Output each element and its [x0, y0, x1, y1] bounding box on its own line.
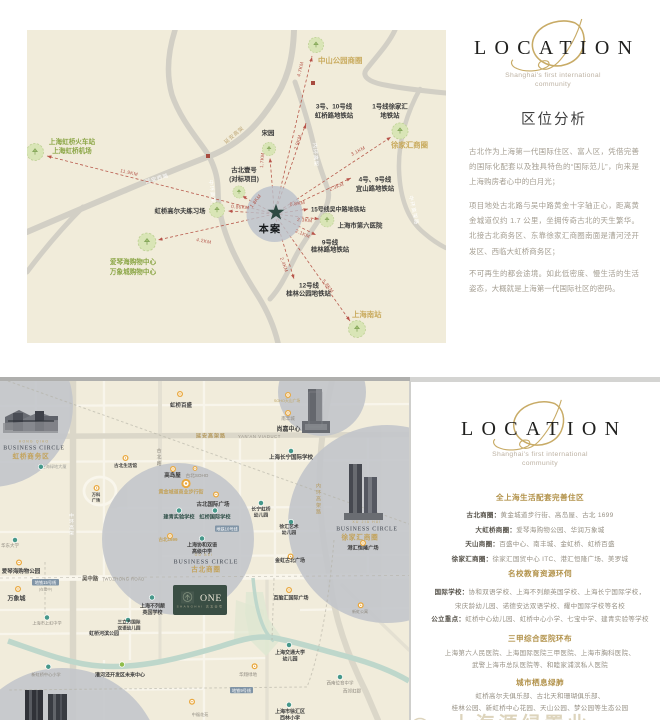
- svg-text:古北壹号: 古北壹号: [231, 165, 257, 174]
- svg-text:高级中学: 高级中学: [192, 548, 212, 555]
- svg-text:XU JIA HUI: XU JIA HUI: [352, 520, 381, 524]
- svg-text:内环高架路: 内环高架路: [315, 482, 321, 515]
- svg-text:本案: 本案: [259, 223, 281, 236]
- svg-text:中环高架: 中环高架: [68, 512, 73, 536]
- svg-text:新虹桥中心小学: 新虹桥中心小学: [31, 671, 60, 678]
- svg-text:古北商圈: 古北商圈: [191, 565, 221, 574]
- svg-text:徐家汇商圈: 徐家汇商圈: [341, 533, 379, 542]
- svg-text:西郊虹郡: 西郊虹郡: [343, 688, 361, 695]
- svg-text:SOHO天山广场: SOHO天山广场: [274, 398, 301, 403]
- svg-text:地铁15号线: 地铁15号线: [35, 579, 57, 586]
- svg-text:三立方国际: 三立方国际: [118, 619, 141, 626]
- svg-text:上海绿地大厦: 上海绿地大厦: [41, 463, 66, 470]
- svg-text:吴中路: 吴中路: [82, 575, 99, 583]
- svg-text:南丰城: 南丰城: [281, 415, 295, 422]
- svg-text:虹桥商务区: 虹桥商务区: [13, 452, 50, 461]
- svg-text:上海南站: 上海南站: [352, 310, 382, 319]
- svg-text:中山公园商圈: 中山公园商圈: [318, 56, 362, 65]
- svg-text:黄金城道商业步行街: 黄金城道商业步行街: [158, 489, 203, 496]
- svg-text:虹桥路地铁站: 虹桥路地铁站: [315, 111, 354, 120]
- svg-text:15号线吴中路地铁站: 15号线吴中路地铁站: [311, 206, 366, 214]
- svg-text:上海交通大学: 上海交通大学: [275, 649, 305, 656]
- svg-text:古北SOHO: 古北SOHO: [186, 472, 209, 479]
- svg-text:广场: 广场: [92, 497, 101, 504]
- svg-text:桂林公园地铁站: 桂林公园地铁站: [285, 289, 331, 298]
- svg-text:万象城: 万象城: [6, 595, 25, 603]
- svg-text:上海市徐汇区: 上海市徐汇区: [275, 708, 305, 715]
- svg-text:12号线: 12号线: [299, 281, 319, 290]
- svg-text:新虹公寓: 新虹公寓: [352, 608, 368, 614]
- svg-text:高岛屋: 高岛屋: [164, 471, 181, 479]
- svg-text:幼儿园: 幼儿园: [254, 512, 269, 519]
- svg-text:地铁9号线: 地铁9号线: [232, 687, 252, 694]
- svg-text:金虹古北广场: 金虹古北广场: [274, 557, 305, 564]
- svg-text:虹桥国际学校: 虹桥国际学校: [199, 513, 231, 521]
- svg-text:上海虹桥火车站: 上海虹桥火车站: [49, 137, 96, 146]
- svg-text:地铁站: 地铁站: [380, 111, 400, 120]
- svg-text:YAN'AN VIADUCT: YAN'AN VIADUCT: [238, 434, 281, 439]
- svg-text:9号线: 9号线: [322, 238, 339, 247]
- svg-text:幼儿园: 幼儿园: [282, 656, 297, 663]
- svg-text:SHANGHAI 古北壹号: SHANGHAI 古北壹号: [177, 604, 224, 609]
- svg-text:万象城购物中心: 万象城购物中心: [109, 267, 157, 276]
- svg-text:幼儿园: 幼儿园: [282, 529, 297, 536]
- svg-text:百脑汇国际广场: 百脑汇国际广场: [273, 595, 308, 602]
- svg-text:4号、9号线: 4号、9号线: [359, 175, 392, 184]
- svg-text:3号、10号线: 3号、10号线: [316, 102, 353, 111]
- svg-text:|WUZHONG ROAD: |WUZHONG ROAD: [103, 577, 145, 582]
- svg-text:虹桥百盛: 虹桥百盛: [170, 401, 193, 409]
- svg-text:BUSINESS CIRCLE: BUSINESS CIRCLE: [174, 560, 239, 566]
- svg-text:延安高架路: 延安高架路: [195, 433, 226, 440]
- svg-text:虹桥高尔夫练习场: 虹桥高尔夫练习场: [154, 206, 206, 215]
- svg-text:古北生活馆: 古北生活馆: [114, 462, 137, 469]
- svg-text:华东大学: 华东大学: [1, 542, 19, 549]
- svg-text:长宁虹桥: 长宁虹桥: [251, 506, 270, 513]
- svg-text:古北路: 古北路: [156, 447, 161, 467]
- svg-text:徐汇艺术: 徐汇艺术: [278, 523, 298, 530]
- svg-text:(对标项目): (对标项目): [229, 174, 259, 183]
- svg-text:宋园: 宋园: [261, 128, 275, 137]
- svg-text:中福花苑: 中福花苑: [192, 711, 210, 718]
- svg-text:上海不列颠: 上海不列颠: [140, 603, 165, 610]
- svg-text:上海协和双语: 上海协和双语: [187, 542, 217, 549]
- svg-text:古北国际广场: 古北国际广场: [196, 500, 230, 508]
- svg-text:宜山路地铁站: 宜山路地铁站: [356, 184, 395, 193]
- svg-text:爱琴海购物公园: 爱琴海购物公园: [2, 567, 41, 575]
- svg-text:漕河泾开发区未来中心: 漕河泾开发区未来中心: [95, 672, 145, 679]
- svg-text:上海市第六医院: 上海市第六医院: [338, 221, 383, 230]
- svg-text:西林小学: 西林小学: [280, 715, 300, 720]
- svg-text:HONG QIAO: HONG QIAO: [19, 440, 49, 444]
- svg-text:爱琴海购物中心: 爱琴海购物中心: [110, 257, 157, 266]
- svg-text:虹桥河滨公园: 虹桥河滨公园: [89, 630, 119, 637]
- svg-text:西南位育中学: 西南位育中学: [327, 680, 354, 687]
- svg-text:BUSINESS CIRCLE: BUSINESS CIRCLE: [336, 527, 397, 533]
- svg-text:双语幼儿园: 双语幼儿园: [118, 625, 141, 632]
- svg-text:英国学校: 英国学校: [142, 609, 163, 616]
- svg-text:华翔绿地: 华翔绿地: [239, 671, 257, 678]
- svg-text:徐家汇商圈: 徐家汇商圈: [390, 141, 428, 150]
- svg-text:尚嘉中心: 尚嘉中心: [276, 425, 300, 433]
- svg-text:1号线徐家汇: 1号线徐家汇: [372, 102, 408, 111]
- svg-text:上海市上虹中学: 上海市上虹中学: [32, 620, 61, 627]
- svg-text:(在建中): (在建中): [39, 587, 52, 592]
- svg-text:古北1699: 古北1699: [158, 536, 178, 543]
- svg-text:BUSINESS CIRCLE: BUSINESS CIRCLE: [3, 446, 64, 452]
- svg-text:建青实验学校: 建青实验学校: [163, 513, 195, 521]
- svg-text:桂林路地铁站: 桂林路地铁站: [310, 245, 350, 254]
- svg-text:地铁10号线: 地铁10号线: [216, 525, 238, 532]
- svg-text:上海长宁国际学校: 上海长宁国际学校: [269, 453, 314, 461]
- svg-text:ONE: ONE: [200, 593, 222, 604]
- svg-text:上海虹桥机场: 上海虹桥机场: [52, 146, 92, 155]
